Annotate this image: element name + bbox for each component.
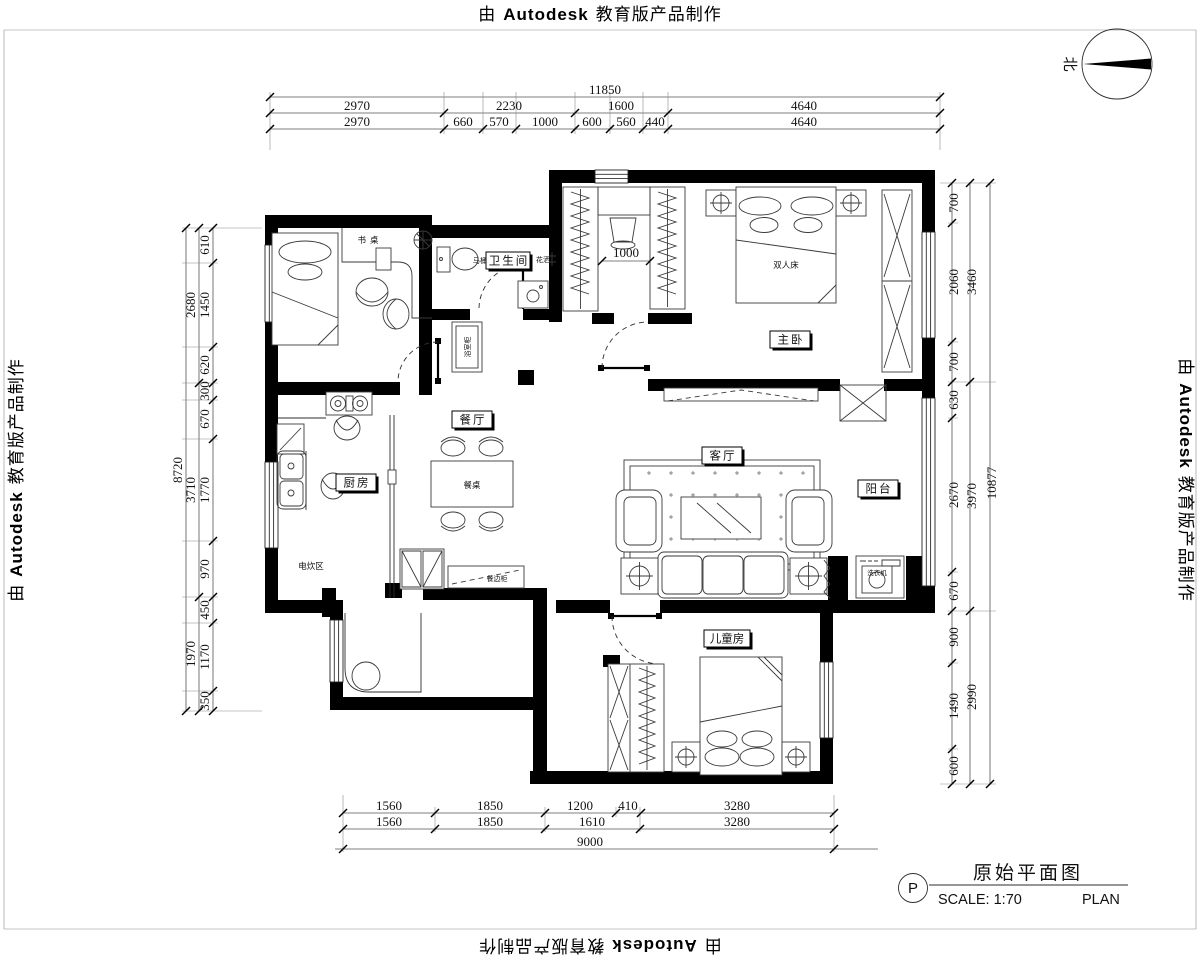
svg-text:900: 900 <box>946 627 961 647</box>
svg-text:儿童房: 儿童房 <box>710 632 745 646</box>
chair-icon <box>441 512 465 531</box>
vanity-label: 浴室柜 <box>463 337 472 358</box>
svg-text:2970: 2970 <box>344 114 370 129</box>
shower-label: 花洒 <box>536 255 550 264</box>
svg-text:2670: 2670 <box>946 482 961 508</box>
svg-text:560: 560 <box>616 114 636 129</box>
dining-furniture: 餐桌 餐边柜 <box>431 437 524 588</box>
floor-plan-canvas: 由Autodesk教育版产品制作 由Autodesk教育版产品制作 由Autod… <box>0 0 1200 960</box>
svg-text:450: 450 <box>197 600 212 620</box>
svg-text:1200: 1200 <box>567 798 593 813</box>
door-master <box>598 322 650 371</box>
svg-text:厨房: 厨房 <box>344 477 371 490</box>
svg-text:阳台: 阳台 <box>866 482 893 496</box>
svg-text:570: 570 <box>489 114 509 129</box>
svg-text:2990: 2990 <box>964 684 979 710</box>
entry-furniture <box>345 613 421 692</box>
svg-text:670: 670 <box>197 409 212 429</box>
armchair-icon <box>616 490 662 552</box>
washbasin-icon <box>518 281 548 308</box>
window-kids-right <box>820 662 833 738</box>
svg-text:10877: 10877 <box>984 466 999 499</box>
svg-text:970: 970 <box>197 559 212 579</box>
svg-text:8720: 8720 <box>170 457 185 483</box>
svg-text:2680: 2680 <box>183 292 198 318</box>
svg-text:主卧: 主卧 <box>778 334 805 347</box>
svg-text:350: 350 <box>197 691 212 711</box>
cooking-area-label: 电炊区 <box>298 561 324 571</box>
svg-text:1610: 1610 <box>579 814 605 829</box>
svg-text:1850: 1850 <box>477 814 503 829</box>
svg-text:410: 410 <box>618 798 638 813</box>
toilet-icon <box>437 247 478 272</box>
svg-text:3280: 3280 <box>724 798 750 813</box>
toilet-label: 马桶 <box>473 256 487 265</box>
nightstand-icon <box>672 742 700 772</box>
svg-text:630: 630 <box>946 390 961 410</box>
sliding-wardrobe-icon <box>882 190 912 372</box>
room-label-bathroom: 卫生间 <box>486 252 533 272</box>
window-balcony-right <box>922 398 935 586</box>
room-label-dining: 餐厅 <box>452 411 495 431</box>
chair-icon <box>479 512 503 531</box>
svg-text:餐厅: 餐厅 <box>460 413 487 427</box>
svg-text:4640: 4640 <box>791 114 817 129</box>
closet-dim: 1000 <box>613 245 639 260</box>
svg-text:3460: 3460 <box>964 269 979 295</box>
wardrobe-right-icon <box>650 187 685 309</box>
svg-text:600: 600 <box>946 756 961 776</box>
svg-text:1000: 1000 <box>532 114 558 129</box>
kids-furniture <box>608 657 810 775</box>
nightstand-icon <box>706 190 736 216</box>
closet-furniture: 1000 <box>563 187 685 311</box>
nightstand-icon <box>836 190 866 216</box>
room-label-master: 主卧 <box>770 331 813 351</box>
svg-text:700: 700 <box>946 352 961 372</box>
chair-icon <box>479 437 503 456</box>
window-kitchen-left <box>265 462 278 548</box>
svg-text:3280: 3280 <box>724 814 750 829</box>
scale-label: SCALE: 1:70 <box>938 892 1022 908</box>
living-furniture <box>616 388 832 598</box>
stamp-left: 由Autodesk教育版产品制作 <box>7 358 26 601</box>
cutting-board-icon <box>277 424 304 454</box>
title-block: P 原始平面图 SCALE: 1:70 PLAN <box>899 862 1129 908</box>
svg-text:1970: 1970 <box>183 641 198 667</box>
svg-text:1170: 1170 <box>197 644 212 670</box>
plan-symbol: P <box>908 880 918 897</box>
room-label-balcony: 阳台 <box>858 480 901 500</box>
tv-cabinet-icon <box>664 388 818 401</box>
svg-text:440: 440 <box>645 114 665 129</box>
svg-text:600: 600 <box>582 114 602 129</box>
window-closet-top <box>595 170 628 183</box>
chair-icon <box>441 437 465 456</box>
svg-text:9000: 9000 <box>577 834 603 849</box>
side-table-icon <box>621 558 658 594</box>
svg-text:3710: 3710 <box>183 477 198 503</box>
sideboard-label: 餐边柜 <box>487 574 508 583</box>
water-heater-icon <box>352 662 380 690</box>
double-bed-label: 双人床 <box>773 260 799 270</box>
svg-text:300: 300 <box>197 381 212 401</box>
window-entry-left <box>330 620 343 682</box>
stove-icon <box>326 392 372 415</box>
kids-bed-icon <box>700 657 782 775</box>
side-table-icon <box>790 558 827 594</box>
svg-text:610: 610 <box>197 235 212 255</box>
stamp-right: 由Autodesk教育版产品制作 <box>1176 358 1195 601</box>
svg-text:1560: 1560 <box>376 798 402 813</box>
desk-label: 书桌 <box>357 235 382 245</box>
dimensions-right: 700 2060 700 630 2670 670 900 1490 600 3… <box>940 179 999 788</box>
svg-text:2970: 2970 <box>344 98 370 113</box>
plan-type-label: PLAN <box>1082 892 1120 908</box>
dimensions-top: 11850 2970 2230 1600 4640 2970 660 570 1… <box>266 82 944 150</box>
sliding-door-kitchen <box>388 415 396 598</box>
svg-text:700: 700 <box>946 193 961 213</box>
armchair-icon <box>786 490 832 552</box>
svg-text:4640: 4640 <box>791 98 817 113</box>
drawing-sheet: 由Autodesk教育版产品制作 由Autodesk教育版产品制作 由Autod… <box>0 0 1200 960</box>
svg-text:3970: 3970 <box>964 483 979 509</box>
room-label-kitchen: 厨房 <box>336 474 379 494</box>
svg-text:1560: 1560 <box>376 814 402 829</box>
svg-text:620: 620 <box>197 355 212 375</box>
svg-text:11850: 11850 <box>589 82 621 97</box>
dimensions-bottom: 1560 1850 1200 410 3280 1560 1850 1610 3… <box>335 795 878 853</box>
sofa-icon <box>658 552 788 598</box>
flue-shaft-icon <box>840 385 886 421</box>
bedroom2-furniture: 书桌 <box>272 228 432 345</box>
north-arrow-icon: 北 <box>1061 29 1152 99</box>
room-label-kids: 儿童房 <box>704 630 753 650</box>
window-master-right <box>922 232 935 338</box>
svg-text:卫生间: 卫生间 <box>489 254 530 268</box>
dimensions-left: 610 1450 620 300 670 1770 970 450 1170 3… <box>170 224 262 715</box>
dining-table-label: 餐桌 <box>463 480 481 490</box>
sink-icon <box>277 451 306 509</box>
nightstand-icon <box>782 742 810 772</box>
coffee-table-icon <box>681 497 761 539</box>
room-label-living: 客厅 <box>702 447 745 467</box>
svg-text:1490: 1490 <box>946 693 961 719</box>
svg-text:1850: 1850 <box>477 798 503 813</box>
washing-machine-icon <box>856 556 904 598</box>
stool-icon <box>334 416 360 440</box>
svg-text:1770: 1770 <box>197 477 212 503</box>
fridge-icon <box>400 549 444 589</box>
svg-text:1450: 1450 <box>197 292 212 318</box>
stamp-top: 由Autodesk教育版产品制作 <box>478 5 721 24</box>
drawing-title: 原始平面图 <box>973 862 1083 884</box>
kids-wardrobe-icon <box>608 664 664 772</box>
svg-text:2060: 2060 <box>946 269 961 295</box>
wardrobe-left-icon <box>563 187 598 311</box>
svg-text:670: 670 <box>946 581 961 601</box>
svg-text:2230: 2230 <box>496 98 522 113</box>
stamp-bottom: 由Autodesk教育版产品制作 <box>478 936 721 955</box>
north-label: 北 <box>1061 56 1078 71</box>
svg-text:660: 660 <box>453 114 473 129</box>
double-bed-icon <box>736 187 836 303</box>
ceiling-fan-icon <box>414 231 432 249</box>
svg-text:客厅: 客厅 <box>710 449 737 463</box>
kitchen-furniture: 电炊区 <box>277 392 444 598</box>
washer-label: 洗衣机 <box>867 568 887 577</box>
svg-text:1600: 1600 <box>608 98 634 113</box>
